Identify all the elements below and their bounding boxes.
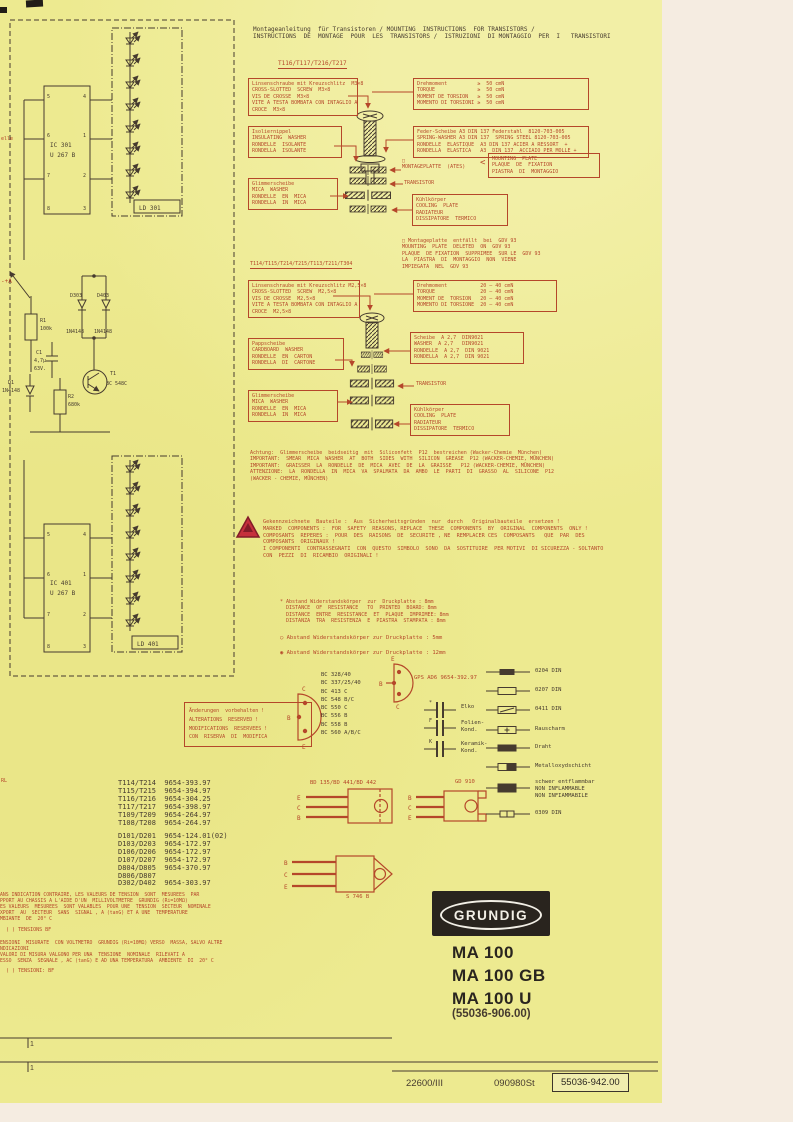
distance-note-12mm: ◉ Abstand Widerstandskörper zur Druckpla… xyxy=(280,650,446,657)
svg-text:1N4148: 1N4148 xyxy=(66,329,84,335)
svg-text:7: 7 xyxy=(47,173,50,179)
warning-triangle-icon xyxy=(237,517,259,537)
torque-note-box-1: Drehmoment ≥ 50 cmN TORQUE ≥ 50 cmN MOME… xyxy=(413,78,589,110)
voltage-note-fr-bf: ( ) TENSIONS BF xyxy=(6,927,51,933)
footer-index-2: 1 xyxy=(30,1065,34,1072)
elko-polarity-mark: * xyxy=(429,700,432,706)
cut-label-plus-a: -+A xyxy=(1,278,12,285)
group1-heading: T116/T117/T216/T217 xyxy=(278,50,347,69)
footer-doc-number: 55036-942.00 xyxy=(552,1073,629,1092)
svg-text:100k: 100k xyxy=(40,326,52,332)
resistor-symbols xyxy=(486,670,530,818)
bc-transistor-list: BC 328/40 BC 337/25/40 BC 413 C BC 548 B… xyxy=(321,671,361,737)
washer-din9021-box: Scheibe A 2,7 DIN9021 WASHER A 2,7 DIN90… xyxy=(410,332,524,364)
gps-part-label: GPS AD6 9654-392.97 xyxy=(414,675,477,682)
footer-rules xyxy=(0,1038,658,1072)
safety-note: Gekennzeichnete Bauteile : Aus Sicherhei… xyxy=(263,519,603,560)
svg-text:R2: R2 xyxy=(68,394,74,400)
svg-text:E: E xyxy=(297,795,301,802)
mounting-plate-box: MOUNTING PLATE PLAQUE DE FIXATION PIASTR… xyxy=(488,153,600,178)
svg-text:B: B xyxy=(297,815,301,822)
res-legend-metalloxyd: Metalloxydschicht xyxy=(535,763,591,770)
svg-text:LD 401: LD 401 xyxy=(137,641,159,648)
svg-text:4,7µ: 4,7µ xyxy=(34,358,46,364)
scanned-service-manual-page: LD 301 IC 301U 267 B LD 401 IC 401U 267 … xyxy=(0,0,793,1122)
svg-text:B: B xyxy=(284,860,288,867)
voltage-note-it: ENSIONI MISURATE CON VOLTMETRO GRUNDIG (… xyxy=(0,941,222,965)
grundig-logo-text: GRUNDIG xyxy=(454,908,528,923)
model-names: MA 100 MA 100 GB MA 100 U xyxy=(452,941,546,1010)
folien-label: Folien- Kond. xyxy=(461,720,484,734)
svg-text:8: 8 xyxy=(47,206,50,212)
chassis-part-number: (55036-906.00) xyxy=(452,1008,531,1020)
svg-text:2: 2 xyxy=(83,612,86,618)
bd-package-label: BD 135/BD 441/BD 442 xyxy=(310,780,376,787)
res-legend-draht: Draht xyxy=(535,744,552,751)
svg-text:7: 7 xyxy=(47,612,50,618)
svg-text:1N4148: 1N4148 xyxy=(2,388,20,394)
svg-text:C: C xyxy=(408,805,412,812)
voltage-note-fr: ANS INDICATION CONTRAIRE, LES VALEURS DE… xyxy=(0,893,211,923)
svg-text:C: C xyxy=(396,704,400,711)
svg-text:2: 2 xyxy=(83,173,86,179)
grundig-logo-oval: GRUNDIG xyxy=(440,900,542,930)
schematic-diagram xyxy=(10,20,234,676)
svg-text:D403: D403 xyxy=(97,293,109,299)
footer-index-1: 1 xyxy=(30,1041,34,1048)
svg-text:C: C xyxy=(284,872,288,879)
distance-note-8mm: * Abstand Widerstandskörper zur Druckpla… xyxy=(280,599,449,625)
svg-text:1: 1 xyxy=(83,133,86,139)
cut-label-rl: RL xyxy=(1,778,7,784)
svg-text:C: C xyxy=(302,686,306,693)
transistor-label-2: TRANSISTOR xyxy=(416,381,446,387)
svg-text:8: 8 xyxy=(47,644,50,650)
grundig-logo: GRUNDIG xyxy=(432,891,550,936)
svg-text:1: 1 xyxy=(83,572,86,578)
svg-text:4: 4 xyxy=(83,94,86,100)
distance-note-5mm: ○ Abstand Widerstandskörper zur Druckpla… xyxy=(280,635,442,642)
res-legend-0411: 0411 DIN xyxy=(535,706,562,713)
svg-text:U 267 B: U 267 B xyxy=(50,590,76,597)
svg-text:63V.: 63V. xyxy=(34,366,46,372)
cooling-plate-box-1: Kühlkörper COOLING PLATE RADIATEUR DISSI… xyxy=(412,194,508,226)
transistor-label-1: TRANSISTOR xyxy=(404,180,434,186)
svg-text:IC 301: IC 301 xyxy=(50,142,72,149)
svg-text:LD 301: LD 301 xyxy=(139,205,161,212)
svg-text:U 267 B: U 267 B xyxy=(50,152,76,159)
svg-text:3: 3 xyxy=(83,644,86,650)
svg-text:C: C xyxy=(297,805,301,812)
cooling-plate-box-2: Kühlkörper COOLING PLATE RADIATEUR DISSI… xyxy=(410,404,510,436)
svg-text:4: 4 xyxy=(83,532,86,538)
svg-text:E: E xyxy=(284,884,288,891)
svg-text:5: 5 xyxy=(47,94,50,100)
keramik-mark: K xyxy=(429,739,432,745)
svg-text:D303: D303 xyxy=(70,293,82,299)
silicon-grease-note: Achtung: Glimmerscheibe beidseitig mit S… xyxy=(250,450,554,482)
cut-label-quelle: elle xyxy=(1,136,13,142)
svg-text:1N4148: 1N4148 xyxy=(94,329,112,335)
svg-text:6: 6 xyxy=(47,133,50,139)
insulating-washer-box: Isoliernippel INSULATING WASHER RONDELLE… xyxy=(248,126,342,158)
gd910-package-label: GD 910 xyxy=(455,779,475,786)
torque-note-box-2: Drehmoment 20 – 40 cmN TORQUE 20 – 40 cm… xyxy=(413,280,557,312)
cardboard-washer-box: Pappscheibe CARDBOARD WASHER RONDELLE EN… xyxy=(248,338,344,370)
res-legend-0204: 0204 DIN xyxy=(535,668,562,675)
gdv93-note: □ Montageplatte entfällt bei GDV 93 MOUN… xyxy=(402,238,540,270)
svg-text:BC 548C: BC 548C xyxy=(106,381,127,387)
res-legend-rauscharm: Rauscharm xyxy=(535,726,565,733)
res-legend-0309: 0309 DIN xyxy=(535,810,562,817)
svg-text:B: B xyxy=(379,681,383,688)
pkg3-label: S 746 B xyxy=(346,894,369,901)
voltage-note-it-bf: ( ) TENSIONI: BF xyxy=(6,968,54,974)
alterations-reserved-box: Änderungen vorbehalten ! ALTERATIONS RES… xyxy=(184,702,312,747)
brace-glyph: < xyxy=(480,158,485,168)
mica-washer-box-2: Glimmerscheibe MICA WASHER RONDELLE EN M… xyxy=(248,390,338,422)
res-legend-0207: 0207 DIN xyxy=(535,687,562,694)
svg-text:6: 6 xyxy=(47,572,50,578)
mica-washer-box-1: Glimmerscheibe MICA WASHER RONDELLE EN M… xyxy=(248,178,338,210)
transistor-parts-list: T114/T214 9654-393.97 T115/T215 9654-394… xyxy=(118,780,211,827)
svg-text:IC 401: IC 401 xyxy=(50,580,72,587)
svg-text:D1: D1 xyxy=(8,380,14,386)
res-legend-flameproof: schwer entflammbar NON INFLAMMABLE NON I… xyxy=(535,779,595,800)
group2-heading: T114/T115/T214/T215/T113/T211/T304 xyxy=(250,250,352,269)
svg-text:E: E xyxy=(391,656,395,663)
svg-text:3: 3 xyxy=(83,206,86,212)
svg-text:C1: C1 xyxy=(36,350,42,356)
svg-text:E: E xyxy=(408,815,412,822)
schematic-labels: LD 301 IC 301U 267 B LD 401 IC 401U 267 … xyxy=(2,94,161,650)
mounting-plate-label: □ MONTAGEPLATTE (ATES) xyxy=(402,158,465,171)
keramik-label: Keramik- Kond. xyxy=(461,741,488,755)
screw-note-box-2: Linsenschraube mit Kreuzschlitz M2,5×8 C… xyxy=(248,280,360,318)
svg-text:R1: R1 xyxy=(40,318,46,324)
svg-text:T1: T1 xyxy=(110,371,116,377)
footer-print-code: 22600/III xyxy=(406,1078,443,1089)
mounting-diagram-2 xyxy=(350,313,393,430)
diode-parts-list: D101/D201 9654-124.01(02) D103/D203 9654… xyxy=(118,833,228,888)
footer-date-code: 090980St xyxy=(494,1078,535,1089)
svg-text:680k: 680k xyxy=(68,402,80,408)
elko-label: Elko xyxy=(461,704,474,711)
page-title: Montageanleitung für Transistoren / MOUN… xyxy=(253,26,611,41)
mounting-diagram-1 xyxy=(346,111,391,214)
capacitor-symbols xyxy=(424,702,456,757)
folien-mark: F xyxy=(429,718,432,724)
svg-text:B: B xyxy=(408,795,412,802)
svg-text:5: 5 xyxy=(47,532,50,538)
screw-note-box-1: Linsenschraube mit Kreuzschlitz M3×8 CRO… xyxy=(248,78,358,116)
